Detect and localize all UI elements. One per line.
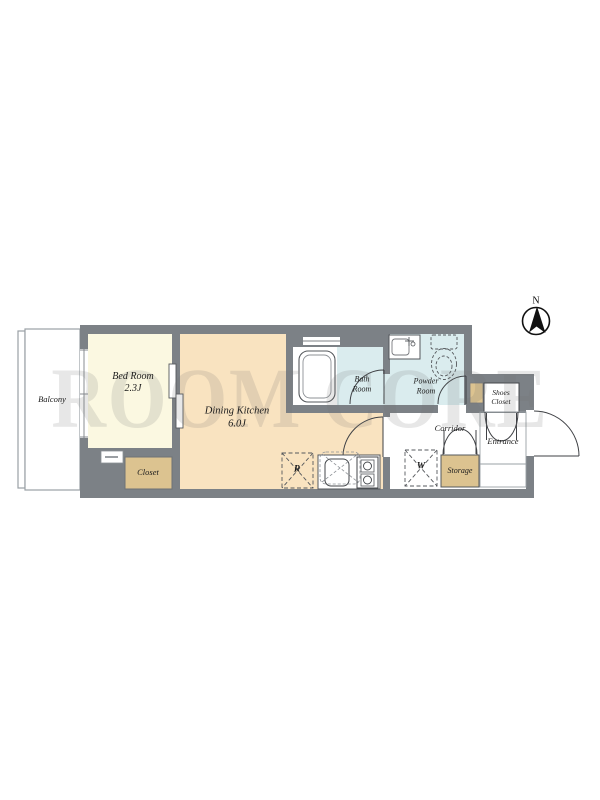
powder-sink — [389, 335, 420, 359]
kitchen-sink — [325, 459, 349, 486]
dining-kitchen-label: Dining Kitchen 6.0J — [205, 405, 269, 430]
dining-kitchen-size: 6.0J — [205, 418, 269, 431]
bedroom-name: Bed Room — [112, 371, 153, 383]
kitchen-fixtures — [318, 452, 380, 489]
floorplan-page: ROOM CORE Balcony Bed Room 2.3J Dining K… — [0, 0, 600, 800]
bath-room-label: Bath Room — [353, 374, 372, 393]
storage-label: Storage — [448, 466, 473, 476]
washer-mark: W — [417, 461, 425, 472]
entrance-label: Entrance — [487, 436, 518, 446]
powder-room-label: Powder Room — [414, 376, 439, 395]
bedroom-label: Bed Room 2.3J — [112, 371, 153, 395]
balcony-label: Balcony — [38, 394, 66, 404]
north-label: N — [532, 296, 539, 307]
shoes-closet-label: Shoes Closet — [491, 388, 510, 406]
bedroom-size: 2.3J — [112, 383, 153, 395]
dining-kitchen-name: Dining Kitchen — [205, 405, 269, 418]
entrance-door — [534, 411, 579, 456]
utility-tan-box — [470, 383, 483, 403]
balcony — [18, 329, 80, 490]
closet-label: Closet — [137, 467, 159, 477]
bathtub — [299, 351, 335, 402]
corridor-label: Corridor — [435, 423, 466, 433]
refrigerator-mark: R — [294, 464, 300, 475]
